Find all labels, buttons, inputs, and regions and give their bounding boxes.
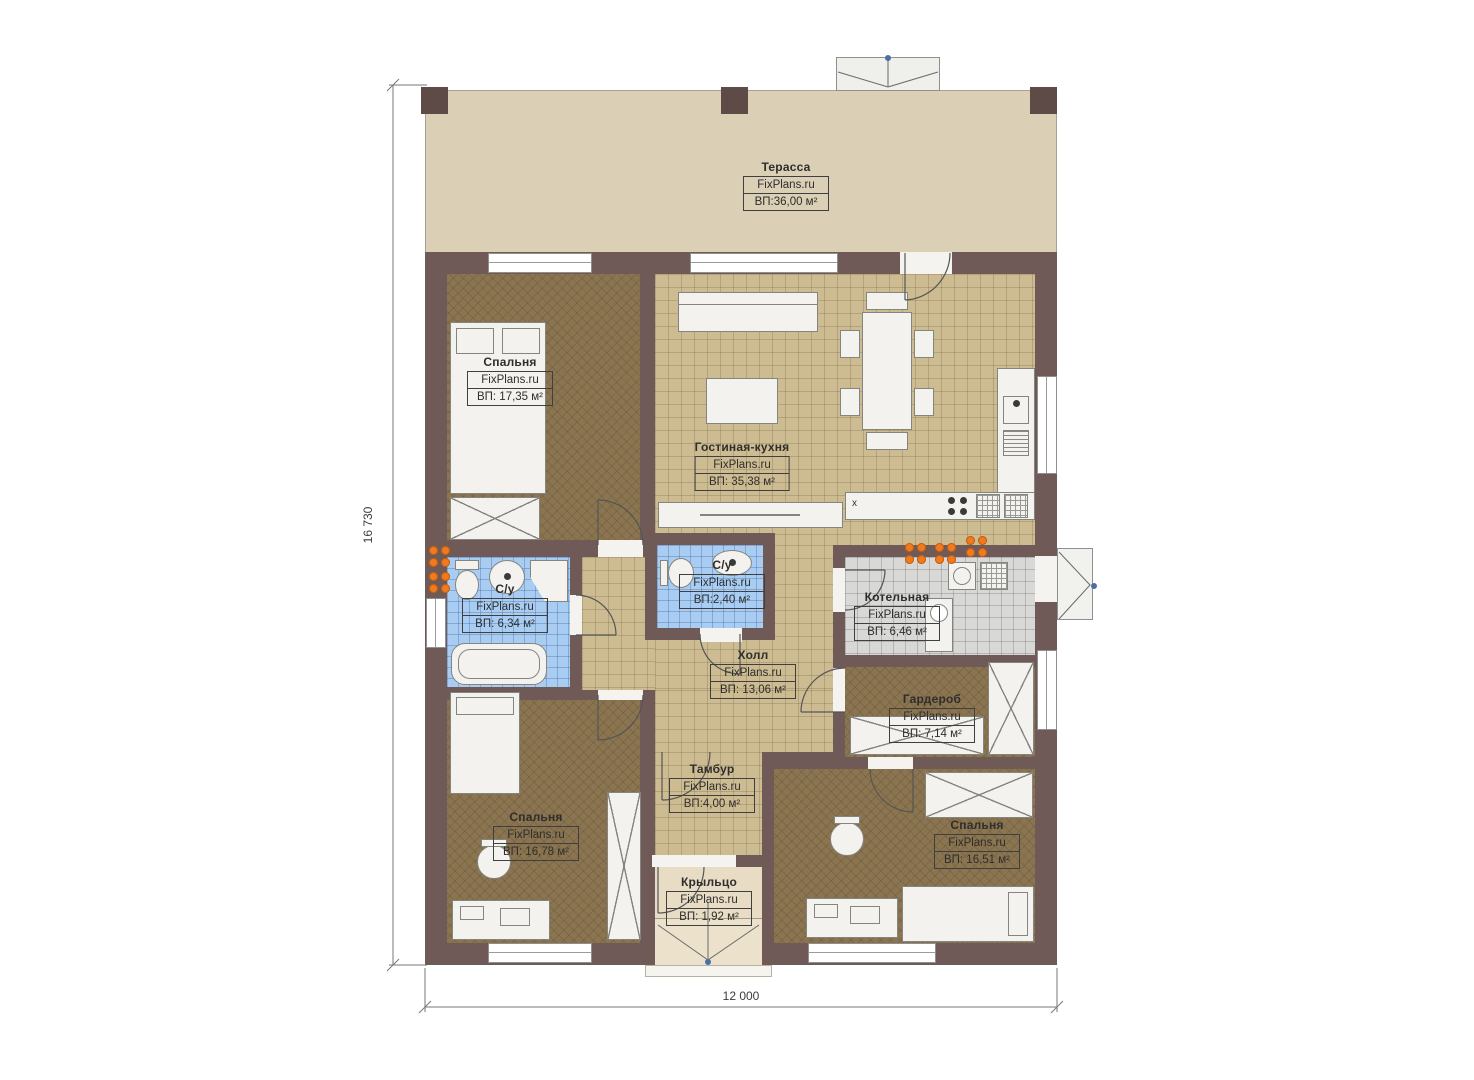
watermark: FixPlans.ru bbox=[743, 176, 829, 194]
cooktop-burner bbox=[948, 508, 955, 515]
pillow bbox=[456, 697, 514, 715]
dining-chair bbox=[914, 388, 934, 416]
desk-item bbox=[814, 904, 838, 918]
window bbox=[690, 253, 838, 273]
door-opening bbox=[1035, 556, 1057, 602]
toilet-tank bbox=[660, 560, 668, 586]
watermark: FixPlans.ru bbox=[889, 708, 975, 726]
coffee-table bbox=[706, 378, 778, 424]
watermark: FixPlans.ru bbox=[669, 778, 755, 796]
room-label-bathroom-small: С/у FixPlans.ru ВП:2,40 м² bbox=[679, 558, 765, 609]
sink-drain-dot bbox=[504, 573, 511, 580]
room-label-living-kitchen: Гостиная-кухня FixPlans.ru ВП: 35,38 м² bbox=[695, 440, 790, 491]
room-area: ВП: 16,51 м² bbox=[934, 852, 1020, 869]
room-area: ВП: 13,06 м² bbox=[710, 682, 796, 699]
desk-item bbox=[500, 908, 530, 926]
bathtub-basin bbox=[458, 649, 540, 679]
radiator bbox=[429, 572, 450, 593]
window bbox=[426, 598, 446, 648]
sofa bbox=[678, 292, 818, 332]
cooktop-burner bbox=[960, 497, 967, 504]
room-name: Холл bbox=[710, 648, 796, 662]
room-area: ВП:2,40 м² bbox=[679, 592, 765, 609]
radiator bbox=[429, 546, 450, 567]
room-area: ВП: 16,78 м² bbox=[493, 844, 579, 861]
door-opening bbox=[700, 628, 742, 642]
room-label-wardrobe-room: Гардероб FixPlans.ru ВП: 7,14 м² bbox=[889, 692, 975, 743]
watermark: FixPlans.ru bbox=[695, 456, 790, 474]
sofa-backrest bbox=[678, 304, 818, 305]
room-label-bedroom-left: Спальня FixPlans.ru ВП: 16,78 м² bbox=[493, 810, 579, 861]
room-name: Крыльцо bbox=[666, 875, 752, 889]
sink-drainboard bbox=[1003, 430, 1029, 456]
dining-chair bbox=[914, 330, 934, 358]
window bbox=[488, 943, 592, 963]
watermark: FixPlans.ru bbox=[493, 826, 579, 844]
cooktop-burner bbox=[948, 497, 955, 504]
door-opening bbox=[598, 690, 643, 700]
door-opening bbox=[868, 757, 913, 769]
door-opening bbox=[900, 252, 952, 274]
room-name: Спальня bbox=[467, 355, 553, 369]
watermark: FixPlans.ru bbox=[462, 598, 548, 616]
watermark: FixPlans.ru bbox=[679, 574, 765, 592]
room-area: ВП:4,00 м² bbox=[669, 796, 755, 813]
dining-chair bbox=[840, 330, 860, 358]
faucet-dot bbox=[1013, 400, 1020, 407]
room-area: ВП: 7,14 м² bbox=[889, 726, 975, 743]
toilet-tank bbox=[455, 560, 479, 570]
room-name: Спальня bbox=[493, 810, 579, 824]
chair bbox=[830, 822, 864, 856]
terrace-pillar bbox=[421, 87, 448, 114]
watermark: FixPlans.ru bbox=[710, 664, 796, 682]
kitchen-appliance bbox=[976, 494, 1000, 518]
hall-floor-lower bbox=[655, 690, 833, 752]
door-opening bbox=[598, 540, 643, 557]
room-area: ВП:36,00 м² bbox=[743, 194, 829, 211]
window bbox=[808, 943, 936, 963]
wardrobe-unit bbox=[607, 792, 641, 940]
radiator bbox=[905, 543, 926, 564]
floor-plan-canvas: x bbox=[0, 0, 1474, 1080]
desk-item bbox=[850, 906, 880, 924]
side-entrance-steps bbox=[1057, 548, 1093, 620]
kitchen-mark: x bbox=[852, 498, 857, 509]
watermark: FixPlans.ru bbox=[666, 891, 752, 909]
room-area: ВП: 6,34 м² bbox=[462, 616, 548, 633]
dining-chair bbox=[866, 432, 908, 450]
desk-item bbox=[460, 906, 484, 920]
chair-back bbox=[834, 816, 860, 824]
door-opening bbox=[652, 855, 736, 867]
room-label-boiler-room: Котельная FixPlans.ru ВП: 6,46 м² bbox=[854, 590, 940, 641]
room-name: Спальня bbox=[934, 818, 1020, 832]
room-name: С/у bbox=[679, 558, 765, 572]
pillow bbox=[502, 328, 540, 354]
room-area: ВП: 1,92 м² bbox=[666, 909, 752, 926]
room-area: ВП: 17,35 м² bbox=[467, 389, 553, 406]
dining-table bbox=[862, 312, 912, 430]
door-opening bbox=[833, 668, 845, 712]
watermark: FixPlans.ru bbox=[854, 606, 940, 624]
door-opening bbox=[833, 568, 845, 612]
door-opening bbox=[570, 595, 582, 635]
room-name: Терасса bbox=[743, 160, 829, 174]
window bbox=[1037, 650, 1057, 730]
wardrobe-unit bbox=[450, 497, 540, 540]
room-label-bedroom-top: Спальня FixPlans.ru ВП: 17,35 м² bbox=[467, 355, 553, 406]
dimension-horizontal-label: 12 000 bbox=[723, 989, 760, 1003]
watermark: FixPlans.ru bbox=[934, 834, 1020, 852]
room-name: Тамбур bbox=[669, 762, 755, 776]
room-label-bedroom-right: Спальня FixPlans.ru ВП: 16,51 м² bbox=[934, 818, 1020, 869]
room-name: С/у bbox=[462, 582, 548, 596]
window bbox=[1037, 376, 1057, 474]
room-label-terrace: Терасса FixPlans.ru ВП:36,00 м² bbox=[743, 160, 829, 211]
room-name: Котельная bbox=[854, 590, 940, 604]
terrace-floor bbox=[425, 90, 1057, 253]
room-label-bathroom-main: С/у FixPlans.ru ВП: 6,34 м² bbox=[462, 582, 548, 633]
room-label-vestibule: Тамбур FixPlans.ru ВП:4,00 м² bbox=[669, 762, 755, 813]
pillow bbox=[456, 328, 494, 354]
terrace-steps bbox=[836, 57, 940, 91]
window bbox=[488, 253, 592, 273]
boiler-appliance bbox=[980, 562, 1008, 590]
pillow bbox=[1008, 892, 1028, 936]
wardrobe-unit bbox=[925, 772, 1033, 818]
room-name: Гостиная-кухня bbox=[695, 440, 790, 454]
kitchen-appliance bbox=[1004, 494, 1028, 518]
wardrobe-unit bbox=[988, 662, 1034, 755]
watermark: FixPlans.ru bbox=[467, 371, 553, 389]
dining-chair bbox=[840, 388, 860, 416]
porch-bottom-step bbox=[645, 965, 772, 977]
terrace-pillar bbox=[1030, 87, 1057, 114]
radiator bbox=[966, 536, 987, 557]
dimension-vertical-label: 16 730 bbox=[361, 507, 375, 544]
dining-chair bbox=[866, 292, 908, 310]
room-area: ВП: 6,46 м² bbox=[854, 624, 940, 641]
tv-soundbar bbox=[700, 514, 800, 516]
radiator bbox=[935, 543, 956, 564]
room-area: ВП: 35,38 м² bbox=[695, 474, 790, 491]
cooktop-burner bbox=[960, 508, 967, 515]
room-label-porch: Крыльцо FixPlans.ru ВП: 1,92 м² bbox=[666, 875, 752, 926]
room-label-hall: Холл FixPlans.ru ВП: 13,06 м² bbox=[710, 648, 796, 699]
room-name: Гардероб bbox=[889, 692, 975, 706]
washer-door bbox=[953, 567, 971, 585]
terrace-pillar bbox=[721, 87, 748, 114]
